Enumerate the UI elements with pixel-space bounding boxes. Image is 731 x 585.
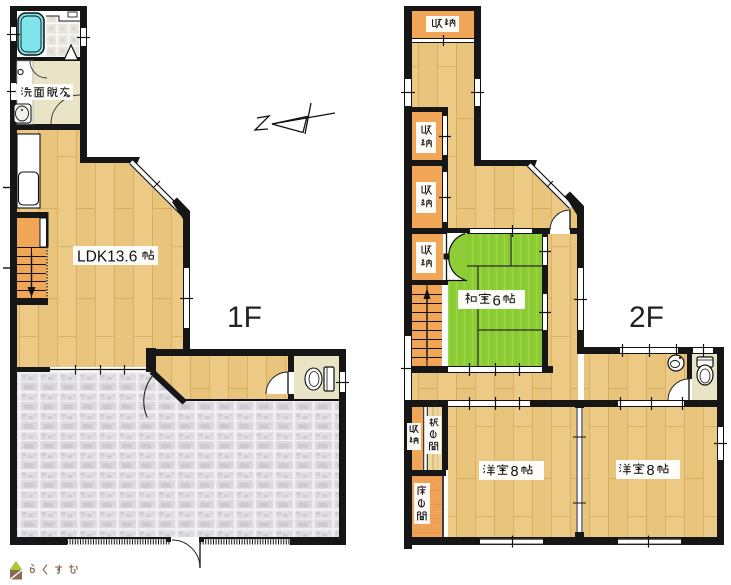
svg-text:LDK13.6: LDK13.6 <box>77 249 137 266</box>
svg-text:1F: 1F <box>227 301 262 334</box>
svg-text:8: 8 <box>647 463 655 479</box>
svg-text:8: 8 <box>511 464 519 480</box>
svg-text:2F: 2F <box>629 301 664 334</box>
svg-text:6: 6 <box>493 293 501 310</box>
